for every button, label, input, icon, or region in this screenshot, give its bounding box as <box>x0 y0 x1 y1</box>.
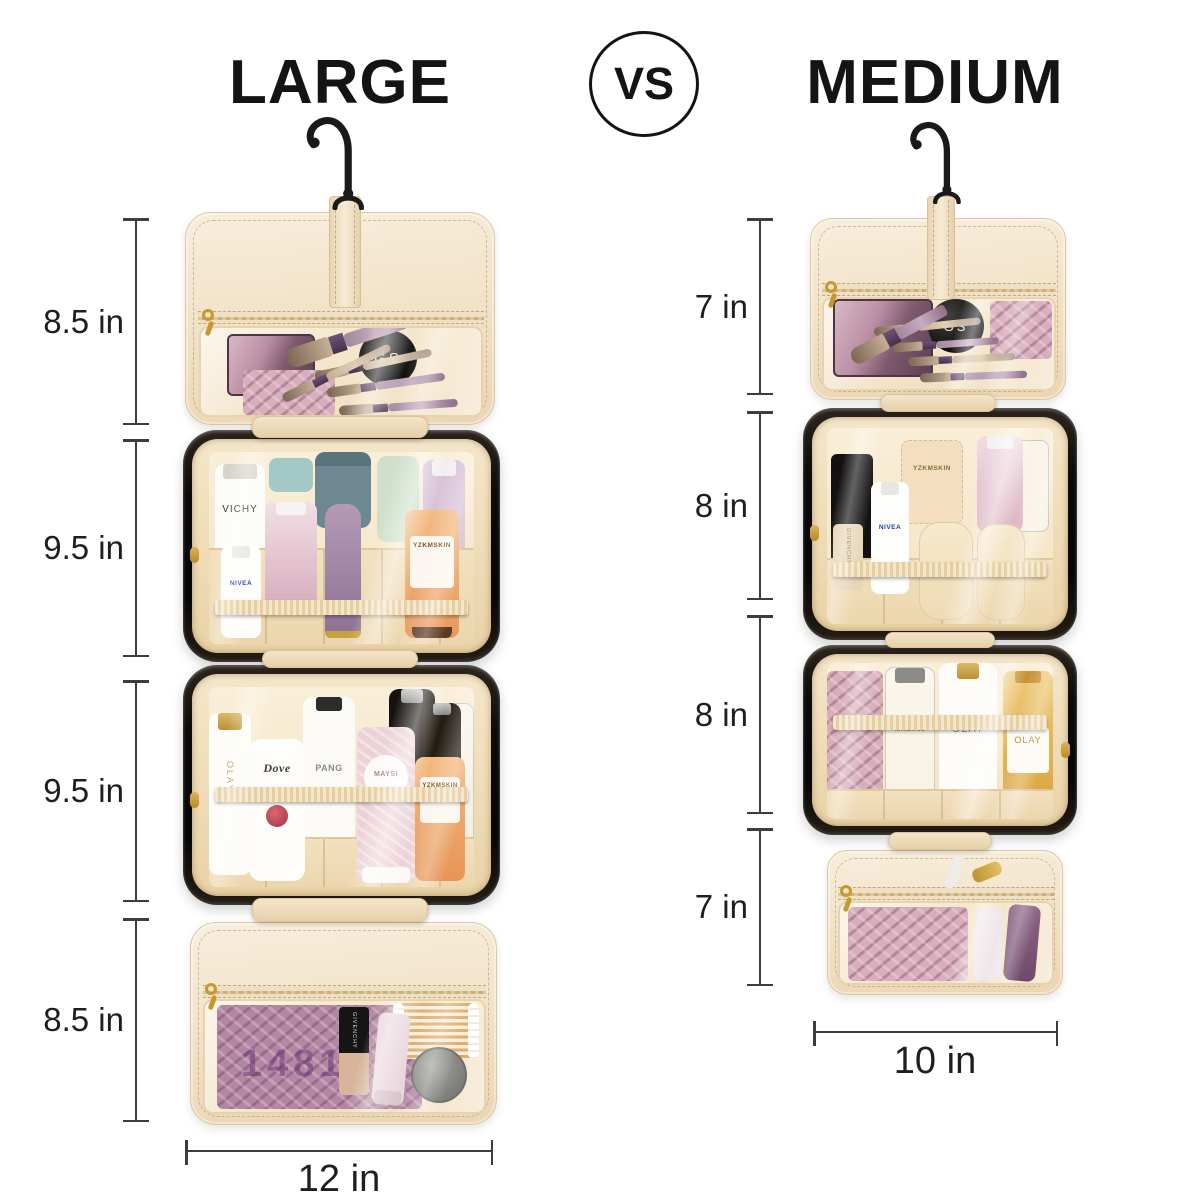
gold-pump <box>957 663 979 679</box>
nivea-pump-bottle: NIVEA <box>871 482 909 594</box>
large-bottom-zipper-pull <box>205 983 217 995</box>
large-section-2-window: VICHY NIVEA YZKMSKIN <box>209 452 474 644</box>
maysi-tube: MAYSI <box>357 727 415 883</box>
medium-hinge-strap <box>885 632 995 648</box>
elastic-band <box>833 715 1047 730</box>
vichy-label: VICHY <box>215 504 265 515</box>
medium-hinge-strap <box>880 394 996 412</box>
pink-snakeskin-pouch <box>827 671 883 807</box>
yzkmskin-pouch: YZKMSKIN <box>901 440 963 524</box>
large-dim-line-2 <box>135 439 137 657</box>
blush-compact <box>990 301 1052 359</box>
dove-tube: Dove <box>249 739 305 881</box>
large-dim-label-4: 8.5 in <box>6 1001 124 1039</box>
hanger-hook-icon <box>300 108 374 210</box>
bottle-cap <box>276 502 306 515</box>
hanger-hook-icon <box>905 114 969 204</box>
yzkmskin-tube: YZKMSKIN <box>415 757 465 881</box>
white-cosmetic-tube <box>972 908 1004 981</box>
elastic-band <box>215 600 468 615</box>
medium-top-zipper-pull <box>825 281 837 293</box>
large-bottom-flap: 1481 GIVENCHY <box>190 922 497 1125</box>
maysi-label: MAYSI <box>357 771 415 778</box>
large-dim-line-1 <box>135 218 137 425</box>
medium-bottom-zipper <box>838 887 1054 900</box>
medium-section-2-window: YZKMSKIN GIVENCHY NIVEA <box>827 428 1053 624</box>
medium-top-pocket-window: GS <box>822 297 1056 391</box>
pump-top <box>881 482 899 495</box>
medium-hanging-strap <box>927 196 955 300</box>
medium-hinge-strap <box>888 832 992 850</box>
case-zipper-pull <box>1061 742 1070 758</box>
chrome-pump <box>433 703 451 715</box>
vs-badge-text: VS <box>614 58 674 110</box>
large-dim-line-3 <box>135 680 137 902</box>
medium-width-label: 10 in <box>894 1040 976 1083</box>
large-width-line <box>185 1150 493 1152</box>
medium-section-3-case: innisfree OLAY OLAY <box>803 645 1077 835</box>
large-bottom-pocket-window: 1481 GIVENCHY <box>203 999 486 1114</box>
medium-dim-line-1 <box>759 218 761 395</box>
pink-toner-bottle <box>977 436 1023 532</box>
case-zipper-pull <box>810 525 819 541</box>
large-width-label: 12 in <box>298 1158 380 1200</box>
givenchy-box: GIVENCHY <box>833 524 863 590</box>
gold-ring <box>325 631 361 638</box>
large-hinge-strap <box>252 416 428 438</box>
tube-cap <box>412 627 452 638</box>
medium-section-3-window: innisfree OLAY OLAY <box>827 663 1053 819</box>
large-title-text: LARGE <box>229 47 451 118</box>
pump-top <box>316 697 342 711</box>
yzkmskin-label: YZKMSKIN <box>902 465 962 472</box>
large-hinge-strap <box>252 898 428 922</box>
spray-pump <box>432 460 456 476</box>
medium-section-2-case: YZKMSKIN GIVENCHY NIVEA <box>803 408 1077 640</box>
large-top-pocket-window: GS <box>199 326 483 417</box>
large-dim-label-3: 9.5 in <box>6 772 124 810</box>
vs-badge: VS <box>589 31 699 137</box>
bottle-cap <box>1015 671 1041 683</box>
purple-cosmetic-tube <box>1003 904 1042 982</box>
mauve-tube <box>325 504 361 638</box>
medium-title-text: MEDIUM <box>806 47 1063 118</box>
large-dim-label-1: 8.5 in <box>6 303 124 341</box>
large-hanging-strap <box>329 196 361 308</box>
pantene-label: PANG <box>303 763 355 773</box>
bottle-cap <box>895 668 925 683</box>
gold-pump <box>218 713 242 730</box>
flip-cap <box>362 867 410 883</box>
pomegranate-graphic <box>266 805 288 827</box>
nivea-label: NIVEA <box>221 580 261 587</box>
large-hinge-strap <box>262 650 418 668</box>
large-dim-line-4 <box>135 918 137 1122</box>
bottle-cap <box>223 464 257 479</box>
pump-top <box>232 546 250 558</box>
large-top-zipper-pull <box>202 309 214 321</box>
givenchy-lipstick: GIVENCHY <box>339 1007 369 1095</box>
medium-dim-line-4 <box>759 828 761 986</box>
medium-dim-label-2: 8 in <box>630 487 748 525</box>
bottle-label-area <box>1007 727 1049 773</box>
dove-label: Dove <box>249 761 305 776</box>
medium-dim-label-4: 7 in <box>630 888 748 926</box>
satin-pockets <box>827 789 1053 819</box>
elastic-band <box>215 787 468 802</box>
bottle-lid <box>315 452 371 466</box>
medium-dim-label-1: 7 in <box>630 288 748 326</box>
large-dim-label-2: 9.5 in <box>6 529 124 567</box>
yzkmskin-tube: YZKMSKIN <box>405 510 459 638</box>
large-bottom-zipper <box>203 985 486 998</box>
chrome-pump <box>401 689 423 703</box>
large-section-3-case: PANG OLAY Dove MAYSI YZKMSKIN <box>183 665 500 905</box>
medium-bottom-flap <box>827 850 1063 995</box>
pink-snakeskin-pouch <box>848 907 968 981</box>
givenchy-label: GIVENCHY <box>351 1012 357 1049</box>
bottle-cap <box>987 436 1013 449</box>
palette-glyph: 1481 <box>241 1043 346 1086</box>
makeup-brush <box>339 398 458 416</box>
gray-round-compact <box>411 1047 467 1103</box>
medium-dim-line-3 <box>759 615 761 814</box>
teal-jar <box>269 458 313 492</box>
innisfree-bottle: innisfree <box>885 667 935 807</box>
case-zipper-pull <box>190 792 199 808</box>
medium-bottom-pocket-window <box>838 901 1054 985</box>
medium-dim-line-2 <box>759 411 761 600</box>
medium-title: MEDIUM <box>750 44 1120 120</box>
medium-width-line <box>813 1031 1058 1033</box>
givenchy-label: GIVENCHY <box>845 528 851 565</box>
medium-bottom-zipper-pull <box>840 885 852 897</box>
large-section-3-window: PANG OLAY Dove MAYSI YZKMSKIN <box>209 687 474 887</box>
tube-cap <box>373 1090 402 1106</box>
large-section-2-case: VICHY NIVEA YZKMSKIN <box>183 430 500 662</box>
medium-dim-label-3: 8 in <box>630 696 748 734</box>
olay-label: OLAY <box>1003 735 1053 745</box>
nivea-label: NIVEA <box>871 524 909 531</box>
pink-toner-bottle <box>265 502 317 606</box>
nivea-pump-bottle: NIVEA <box>221 546 261 638</box>
large-top-zipper <box>198 311 484 324</box>
case-zipper-pull <box>190 547 199 563</box>
makeup-brush <box>920 370 1027 383</box>
product-comparison-image: LARGE VS MEDIUM 8.5 in 9.5 in 9.5 in 8.5… <box>0 0 1200 1200</box>
yzkmskin-label: YZKMSKIN <box>405 542 459 549</box>
elastic-band <box>833 562 1047 577</box>
